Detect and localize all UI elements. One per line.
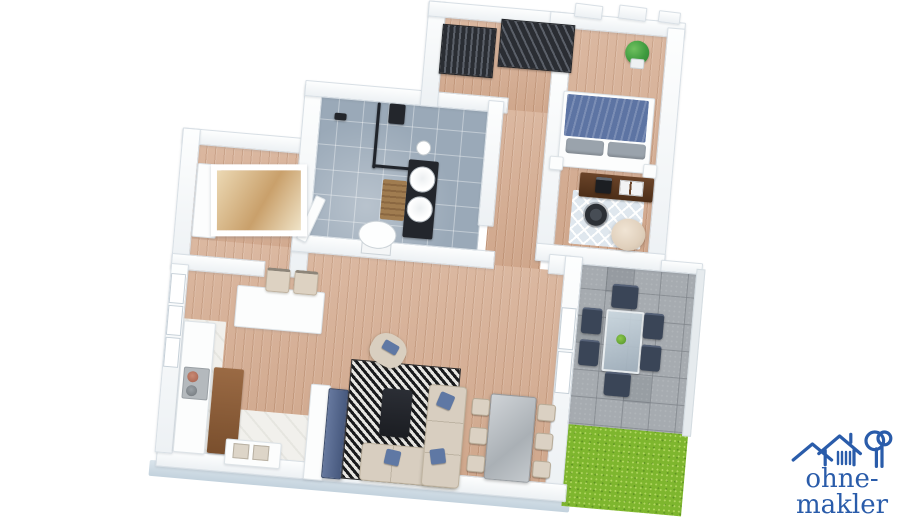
plant-pot xyxy=(630,58,645,69)
bed-blanket xyxy=(564,94,649,143)
shower-column xyxy=(388,103,406,124)
outdoor-chair-right-2 xyxy=(640,344,662,372)
coffee-table xyxy=(379,388,413,438)
big-house-window-slats xyxy=(838,452,850,464)
bar-stool-2 xyxy=(293,270,319,296)
outdoor-chair-top xyxy=(611,284,639,310)
dining-chair xyxy=(534,432,553,451)
outdoor-chair-bottom xyxy=(603,371,631,397)
dining-table xyxy=(483,393,536,483)
ohne-makler-logo: ohne-makler xyxy=(764,428,920,518)
window-left-2 xyxy=(166,305,184,336)
sink-basin-2 xyxy=(252,445,269,461)
outdoor-chair-left-2 xyxy=(578,339,600,367)
framed-picture xyxy=(211,164,307,236)
desk-papers xyxy=(619,180,644,197)
dining-chair xyxy=(469,427,488,446)
roof-beam xyxy=(658,10,681,25)
nightstand-left xyxy=(549,156,564,171)
dining-chair xyxy=(532,460,551,479)
garden-grass xyxy=(561,424,688,516)
apartment-plan xyxy=(124,0,727,520)
logo-houses-tree-icon xyxy=(790,428,894,468)
shower-handle xyxy=(334,113,347,121)
dining-chair xyxy=(537,403,556,422)
window-left-3 xyxy=(163,337,181,368)
sink-basin-1 xyxy=(232,443,249,459)
bed-pillow-left xyxy=(565,138,604,156)
laptop xyxy=(595,177,612,194)
logo-text: ohne-makler xyxy=(764,466,920,518)
window-left-1 xyxy=(169,273,187,304)
wardrobe-slatted-small xyxy=(439,24,497,79)
dining-chair xyxy=(471,398,490,417)
wooden-bath-mat xyxy=(380,179,407,221)
bar-stool-1 xyxy=(265,267,291,293)
floor-plan-image: ohne-makler xyxy=(0,0,924,520)
sofa-pillow-2 xyxy=(429,448,446,465)
outdoor-chair-right-1 xyxy=(642,312,664,340)
nightstand-right xyxy=(642,164,657,179)
bed-pillow-right xyxy=(607,142,646,160)
wardrobe-slatted-large xyxy=(497,19,575,73)
outdoor-chair-left-1 xyxy=(581,307,603,335)
dining-chair xyxy=(466,454,485,473)
